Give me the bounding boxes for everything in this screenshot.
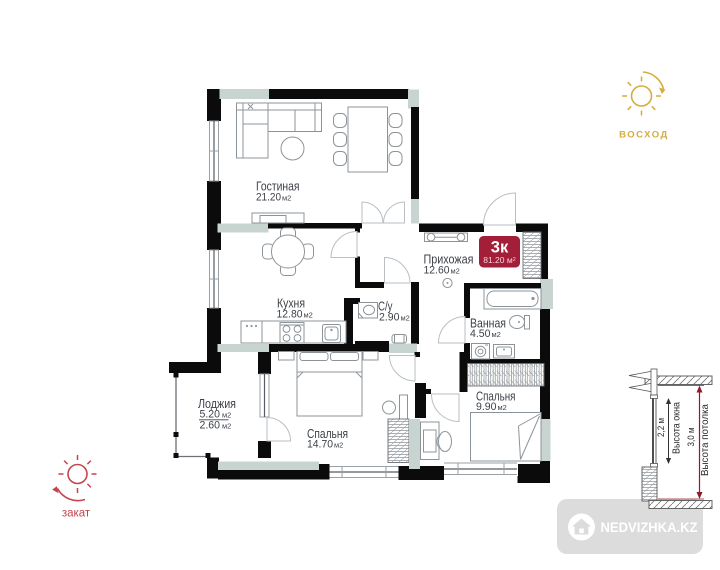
svg-text:3к: 3к (491, 239, 509, 257)
svg-text:2,2 м: 2,2 м (656, 418, 666, 437)
svg-text:м2: м2 (401, 314, 410, 323)
svg-text:м2: м2 (282, 194, 291, 203)
svg-text:м2: м2 (222, 422, 231, 431)
svg-text:9.90: 9.90 (476, 401, 497, 413)
svg-text:12.80: 12.80 (277, 309, 303, 321)
svg-text:м2: м2 (492, 330, 501, 339)
svg-text:2.90: 2.90 (379, 312, 400, 324)
svg-text:м2: м2 (451, 267, 460, 276)
svg-text:2.60: 2.60 (200, 420, 221, 432)
svg-text:м2: м2 (334, 441, 343, 450)
svg-text:м2: м2 (304, 311, 313, 320)
svg-text:81.20 м2: 81.20 м2 (483, 255, 516, 265)
svg-text:Высота окна: Высота окна (671, 402, 683, 454)
svg-text:4.50: 4.50 (470, 328, 491, 340)
svg-text:14.70: 14.70 (307, 439, 333, 451)
svg-text:ВОСХОД: ВОСХОД (619, 130, 669, 141)
svg-text:12.60: 12.60 (424, 265, 450, 277)
svg-text:м2: м2 (498, 403, 507, 412)
svg-text:21.20: 21.20 (256, 192, 281, 204)
svg-text:3,0 м: 3,0 м (686, 428, 696, 447)
svg-text:закат: закат (62, 508, 91, 520)
svg-text:Высота потолка: Высота потолка (699, 404, 711, 476)
svg-text:NEDVIZHKA.KZ: NEDVIZHKA.KZ (601, 519, 698, 535)
svg-text:м2: м2 (222, 411, 231, 420)
